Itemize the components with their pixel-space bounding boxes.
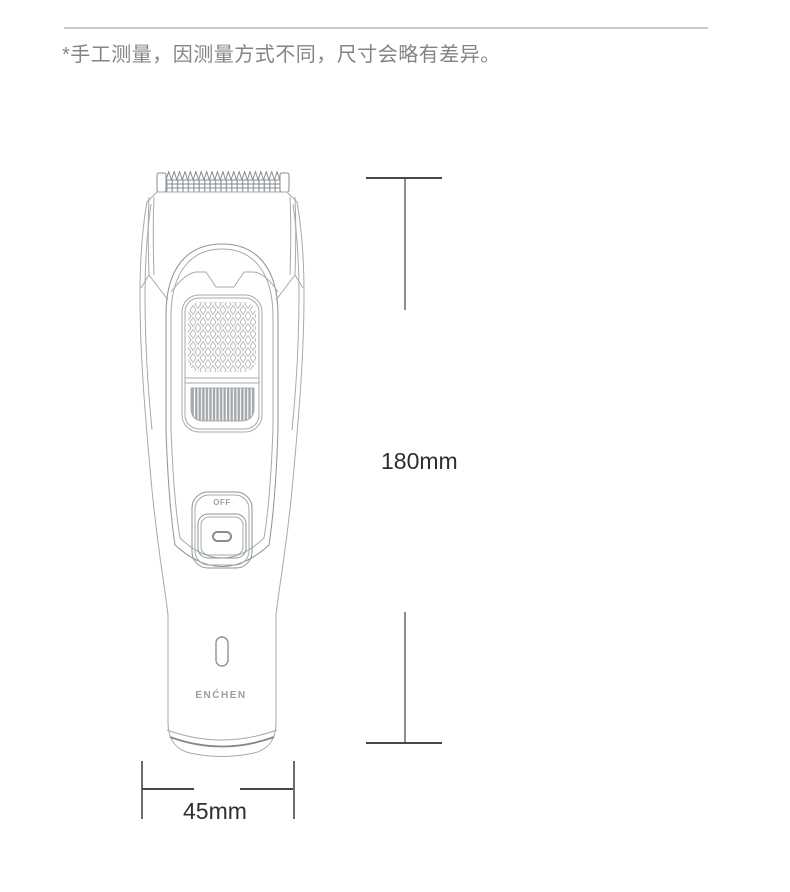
power-button-label: OFF [213, 498, 231, 507]
body-outline [140, 192, 304, 757]
width-dim-line-left [142, 788, 194, 790]
width-dim-line-right [240, 788, 293, 790]
width-dim-label: 45mm [183, 799, 247, 823]
top-divider [64, 27, 708, 29]
width-dim-tick-right [293, 761, 295, 819]
height-dim-label: 180mm [381, 449, 458, 473]
product-dimension-page: *手工测量，因测量方式不同，尺寸会略有差异。 [0, 0, 790, 892]
height-dim-line-upper [404, 179, 406, 310]
comb-teeth [157, 172, 289, 193]
clipper-illustration: OFF ENĆHEN [138, 160, 310, 760]
measurement-note: *手工测量，因测量方式不同，尺寸会略有差异。 [62, 42, 501, 68]
ribbed-slider [191, 388, 254, 421]
height-dim-line-lower [404, 612, 406, 743]
width-dim-tick-left [141, 761, 143, 819]
brand-label: ENĆHEN [195, 688, 246, 701]
height-dim-tick-bottom [366, 742, 442, 744]
